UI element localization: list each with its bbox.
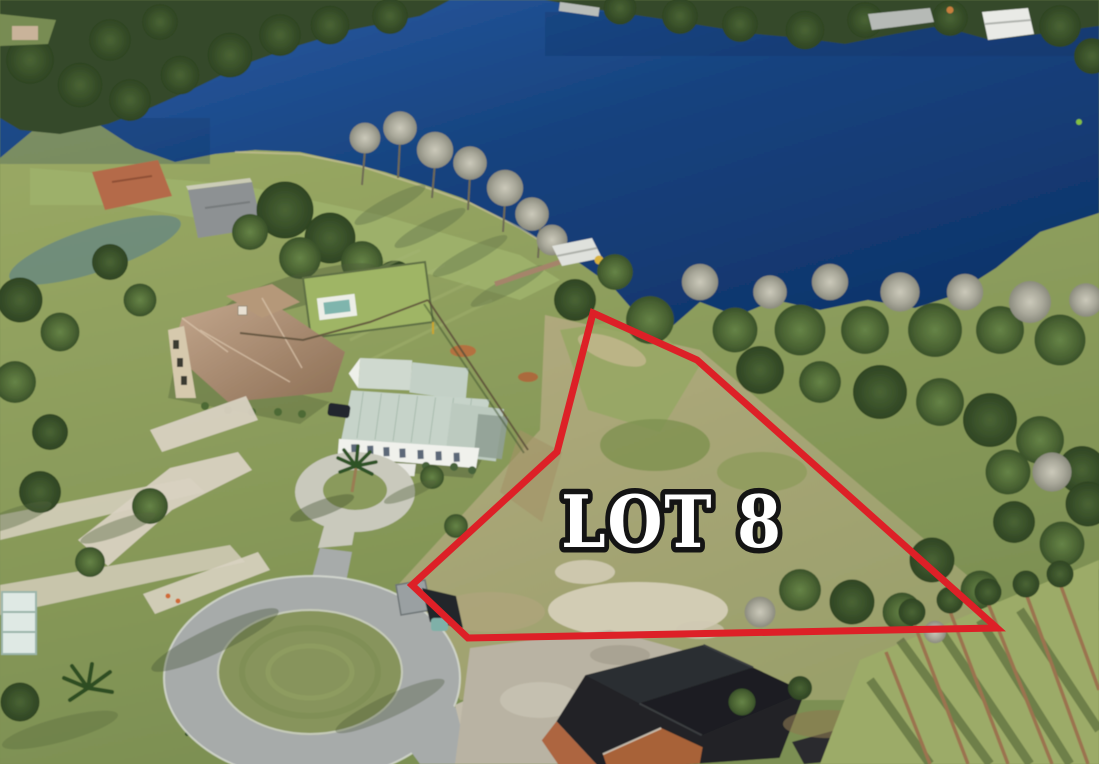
terrain: [0, 0, 1099, 764]
moored-boat: [947, 7, 954, 14]
mulch-pile: [518, 372, 538, 382]
lot-label-text: LOT 8: [561, 479, 783, 564]
garage-roof: [357, 356, 413, 392]
far-house-roof: [12, 26, 38, 40]
chimney: [238, 306, 247, 315]
garden-gazebo: [2, 592, 36, 654]
aerial-photo-lakefront-lot: LOT 8: [0, 0, 1099, 764]
lake-buoy: [1076, 119, 1082, 125]
lot-label-fill: LOT 8: [561, 479, 783, 564]
lot-label: LOT 8: [561, 479, 783, 564]
